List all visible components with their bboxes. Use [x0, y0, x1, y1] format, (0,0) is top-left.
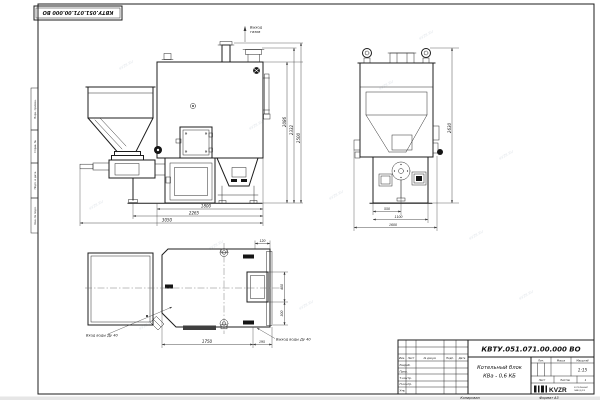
dim-fan-offset: 550: [384, 207, 390, 211]
plan-view-dimensions: 120 400 300 1750 195 Вход воды Ду 40 Вых…: [86, 239, 311, 348]
boiler-door: [176, 127, 213, 158]
dim-total-height: 2500: [296, 132, 301, 143]
gas-callout-line2: газов: [250, 30, 260, 34]
level-gauge-pipe: [263, 74, 270, 119]
th-data: Дата: [458, 356, 466, 360]
top-hatch: [243, 50, 264, 63]
th-podp: Подп.: [446, 356, 454, 360]
dim-plan-side: 300: [280, 310, 284, 316]
scan-edge: [0, 397, 600, 400]
stamp-designation: КВТУ.051.071.00.000 ВО: [42, 9, 114, 15]
lifting-lugs: [363, 49, 431, 64]
th-dokum: № докум.: [423, 357, 437, 360]
chimney-stub: [218, 42, 234, 63]
row-razrab: Разраб.: [400, 363, 411, 367]
outlet-leader: [257, 328, 275, 339]
logo-text: KVZR: [549, 387, 567, 394]
plan-port-top: [243, 255, 254, 259]
tb-name-line1: Котельный блок: [477, 365, 523, 371]
row-prov: Пров.: [400, 370, 408, 374]
row-utv: Утв.: [400, 388, 406, 392]
tb-sheets-value: 1: [585, 378, 587, 382]
ash-hopper: [217, 158, 258, 203]
inner-hopper: [366, 92, 427, 152]
side-view: [354, 49, 443, 204]
side-lower-section: [373, 157, 428, 203]
watermark-text: KVZR.RU: [249, 119, 265, 130]
dim-side-width: 1600: [389, 223, 397, 227]
logo-sub2: ЗАВОД.РФ: [574, 389, 585, 392]
tb-designation: КВТУ.051.071.00.000 ВО: [481, 346, 580, 354]
watermark-text: KVZR.RU: [299, 299, 315, 310]
watermark-text: KVZR.RU: [499, 149, 515, 160]
dim-plan-top: 120: [259, 239, 265, 243]
front-view-dimensions: 1800 2265 3050 2086 2332 2500 Выход газо…: [80, 26, 303, 227]
plan-door: [247, 272, 268, 302]
title-block: Изм. Лист № докум. Подп. Дата Разраб. Пр…: [398, 340, 594, 400]
th-list: Лист: [407, 356, 415, 360]
tb-mass-label: Масса: [557, 358, 566, 362]
water-outlet-callout: Выход воды Ду 40: [276, 338, 311, 342]
side-attachments: [354, 126, 443, 158]
th-izm: Изм.: [399, 356, 405, 360]
column-label: Инв. № подл.: [33, 206, 37, 224]
side-body: [360, 63, 433, 157]
column-label: Подп. и дата: [33, 171, 37, 189]
watermark-text: KVZR.RU: [379, 79, 395, 90]
left-frame-columns: Перв. примен. Справ. № Подп. и дата Инв.…: [31, 88, 38, 233]
gas-callout-line1: Выход: [250, 26, 263, 30]
tb-scale-label: Масштаб: [576, 358, 589, 362]
gas-arrowhead: [244, 26, 247, 31]
body-fitting-dot: [192, 105, 194, 107]
top-left-stamp: КВТУ.051.071.00.000 ВО: [34, 6, 122, 20]
watermark-text: KVZR.RU: [329, 189, 345, 200]
watermark-text: KVZR.RU: [119, 59, 135, 70]
row-nkontr: Н.контр.: [400, 382, 413, 386]
dim-side-height: 2630: [447, 122, 452, 133]
tb-sheets-label: Листов: [559, 378, 570, 382]
drawing-sheet: KVZR.RU KVZR.RU KVZR.RU KVZR.RU KVZR.RU …: [0, 0, 600, 400]
water-inlet-callout: Вход воды Ду 40: [86, 334, 119, 338]
dim-plan-offset: 195: [259, 340, 265, 344]
row-tkontr: Т.контр.: [400, 376, 412, 380]
tb-scale-value: 1:15: [578, 368, 588, 373]
tb-sheet-label: Лист: [538, 378, 546, 382]
fan-flange-hub: [157, 149, 159, 151]
dim-body-height: 2086: [282, 116, 287, 127]
watermark-text: KVZR.RU: [519, 289, 535, 300]
plan-hatch-strip: [183, 326, 216, 331]
dim-hatch-height: 2332: [289, 124, 294, 135]
plan-view: [85, 243, 282, 334]
safety-valve: [162, 54, 173, 60]
column-label: Справ. №: [33, 140, 37, 153]
plan-port-bottom: [243, 321, 254, 325]
dim-mid-width: 2265: [189, 211, 200, 216]
logo-sub1: КОТЕЛЬНЫЙ: [574, 386, 588, 389]
dim-total-length: 3050: [162, 218, 173, 223]
burner-assembly: [80, 160, 165, 203]
tb-name-line2: КВа - 0,6 КБ: [483, 374, 516, 380]
column-label: Перв. примен.: [33, 99, 37, 119]
side-top-hatch: [388, 53, 416, 63]
dim-plan-door: 400: [280, 284, 284, 290]
copied-label: Копировал: [460, 396, 480, 400]
fuel-hopper: [86, 87, 155, 160]
dim-lower-width: 1100: [394, 215, 402, 219]
tb-lit-label: Лит.: [537, 358, 544, 362]
front-view: [80, 42, 270, 204]
watermark-text: KVZR.RU: [419, 29, 435, 40]
lower-section: [165, 158, 215, 203]
watermark-text: KVZR.RU: [89, 199, 105, 210]
manufacturer-logo: KVZR КОТЕЛЬНЫЙ ЗАВОД.РФ: [534, 386, 588, 394]
frame-border: [38, 4, 594, 394]
watermark-text: KVZR.RU: [469, 229, 485, 240]
watermarks: KVZR.RU KVZR.RU KVZR.RU KVZR.RU KVZR.RU …: [89, 29, 535, 330]
dim-plan-length: 1750: [202, 339, 213, 344]
plan-hopper: [88, 253, 153, 325]
engineering-drawing: KVZR.RU KVZR.RU KVZR.RU KVZR.RU KVZR.RU …: [0, 0, 600, 400]
dim-body-width: 1800: [201, 204, 212, 209]
format-label: Формат А3: [539, 396, 558, 400]
boiler-body: [157, 62, 263, 158]
